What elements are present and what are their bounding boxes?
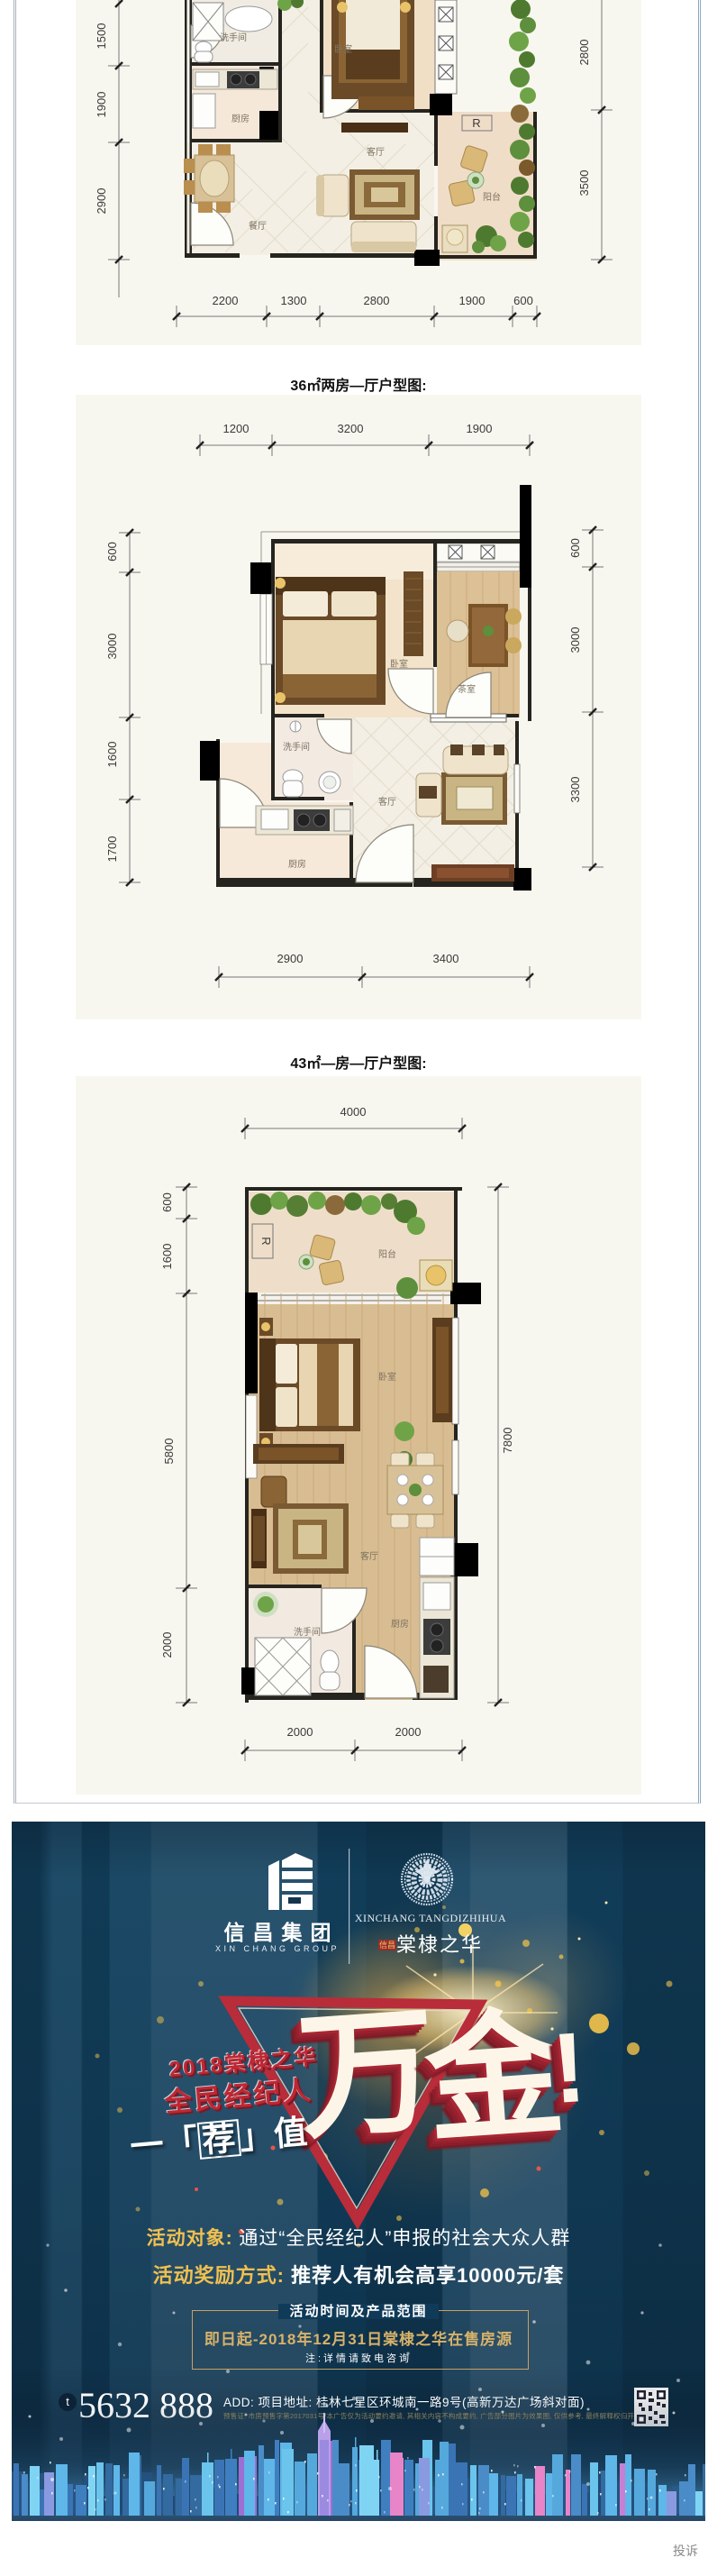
- svg-text:1200: 1200: [223, 422, 250, 435]
- svg-text:2900: 2900: [277, 952, 304, 965]
- svg-text:4000: 4000: [340, 1105, 367, 1119]
- svg-text:卧室: 卧室: [334, 43, 352, 55]
- svg-text:7800: 7800: [501, 1428, 514, 1454]
- svg-text:1600: 1600: [105, 742, 119, 768]
- svg-text:客厅: 客厅: [378, 796, 396, 808]
- svg-text:厨房: 厨房: [391, 1618, 409, 1630]
- svg-text:卧室: 卧室: [378, 1371, 396, 1383]
- svg-text:厨房: 厨房: [288, 858, 306, 870]
- svg-text:1900: 1900: [95, 92, 108, 118]
- svg-text:1900: 1900: [467, 422, 493, 435]
- svg-text:茶室: 茶室: [458, 683, 476, 695]
- svg-text:3400: 3400: [433, 952, 459, 965]
- svg-text:600: 600: [105, 542, 119, 562]
- svg-text:600: 600: [568, 538, 582, 558]
- svg-text:洗手间: 洗手间: [220, 32, 247, 43]
- svg-text:R: R: [472, 116, 480, 130]
- svg-text:3000: 3000: [105, 634, 119, 660]
- svg-text:1900: 1900: [459, 294, 486, 307]
- svg-text:R: R: [259, 1237, 273, 1245]
- svg-text:2000: 2000: [160, 1632, 174, 1658]
- svg-text:2000: 2000: [287, 1725, 313, 1739]
- svg-text:洗手间: 洗手间: [294, 1626, 321, 1638]
- svg-text:1300: 1300: [281, 294, 307, 307]
- svg-text:1700: 1700: [105, 836, 119, 863]
- svg-text:卧室: 卧室: [390, 658, 408, 670]
- svg-text:3200: 3200: [338, 422, 364, 435]
- svg-text:阳台: 阳台: [378, 1248, 396, 1260]
- svg-text:1600: 1600: [160, 1244, 174, 1270]
- svg-text:2800: 2800: [577, 40, 591, 66]
- svg-text:餐厅: 餐厅: [249, 220, 267, 232]
- svg-text:客厅: 客厅: [367, 146, 385, 158]
- svg-text:阳台: 阳台: [483, 191, 501, 203]
- svg-text:2900: 2900: [95, 188, 108, 215]
- svg-text:600: 600: [160, 1192, 174, 1212]
- svg-text:2200: 2200: [213, 294, 239, 307]
- svg-text:3000: 3000: [568, 627, 582, 653]
- svg-text:厨房: 厨房: [231, 113, 250, 124]
- svg-text:1500: 1500: [95, 23, 108, 50]
- svg-text:2800: 2800: [364, 294, 390, 307]
- svg-text:3500: 3500: [577, 170, 591, 196]
- svg-text:5800: 5800: [162, 1439, 176, 1465]
- svg-text:洗手间: 洗手间: [283, 741, 310, 753]
- svg-text:600: 600: [513, 294, 533, 307]
- svg-text:客厅: 客厅: [360, 1550, 378, 1562]
- svg-text:2000: 2000: [395, 1725, 422, 1739]
- svg-text:3300: 3300: [568, 777, 582, 803]
